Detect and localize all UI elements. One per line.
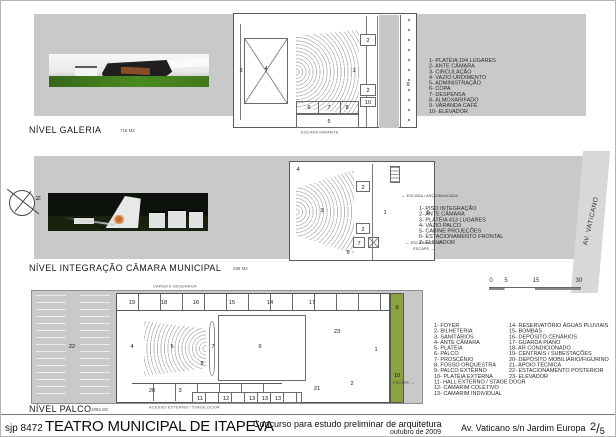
room-number: 13	[249, 395, 255, 401]
room-number: 13	[262, 395, 268, 401]
room-number: 1	[374, 346, 377, 352]
project-title: TEATRO MUNICIPAL DE ITAPEVA	[45, 418, 274, 435]
room-number: 12	[223, 395, 229, 401]
backstage-rooms-band	[117, 294, 389, 311]
north-compass: N	[5, 187, 41, 221]
room-number: 3	[178, 387, 181, 393]
scale-bar: 0 5 15 30	[489, 278, 581, 291]
integracao-area-label: 288 M2	[233, 266, 248, 271]
palco-escape-label: ESCAPE →	[393, 380, 415, 385]
room-number: 2	[361, 226, 364, 232]
room-number: 5	[346, 249, 349, 255]
room-number: 14	[267, 299, 273, 305]
room-number: 1	[352, 67, 355, 73]
room-number: 5	[327, 118, 330, 124]
palco-caption-top: CARGA E DESCARGA	[153, 284, 197, 289]
integracao-legend: 1- PISO INTEGRAÇÃO 2- ANTE CÂMARA 3- PLA…	[419, 206, 503, 246]
room-number: 9	[395, 304, 398, 310]
palco-caption-bottom: ACESSO EXTERNO / STAGE DOOR	[149, 405, 220, 410]
room-number: 15	[229, 299, 235, 305]
north-label: N	[34, 196, 40, 200]
stair-bleachers-text: ESCADA / ARQUIBANCADA	[407, 194, 458, 199]
room-number: 2	[366, 37, 369, 43]
scale-line	[489, 287, 581, 290]
legend-item: 7- ELEVADOR	[419, 240, 503, 246]
legend-item: 13- CAMARIM INDIVIDUAL	[434, 391, 526, 397]
room-number: 3	[239, 67, 242, 73]
project-code: sjp 8472	[5, 423, 43, 434]
shaft-room	[368, 237, 379, 248]
room-number: 7	[211, 343, 214, 349]
corridor-wall-2	[377, 16, 378, 127]
room-number: 11	[197, 395, 203, 401]
integracao-render-image	[48, 193, 208, 231]
galeria-plan-caption: ESCADA MIRANTE	[301, 130, 338, 135]
room-number: 2	[366, 87, 369, 93]
room-number: 19	[129, 299, 135, 305]
palco-floor-plan: 22 19 18 16 15 14 17 4 5 7 6 8 20 3 21 1…	[31, 290, 423, 404]
room-number: 4	[130, 343, 133, 349]
dressing-rooms-row	[192, 392, 302, 403]
room-number: 17	[309, 299, 315, 305]
room-number: 9	[406, 81, 409, 87]
date-label: outubro de 2009	[253, 429, 455, 436]
room-number: 7	[327, 104, 330, 110]
room-number: 6	[258, 343, 261, 349]
room-number: 7	[357, 240, 360, 246]
room-number: 4	[296, 166, 299, 172]
stair-run	[390, 166, 400, 183]
galeria-floor-plan: 3 4 1 2 2 10 6 7 8 5 9	[233, 13, 417, 128]
competition-subtitle-block: Concurso para estudo preliminar de arqui…	[253, 419, 455, 436]
palco-level-label: NÍVEL PALCO	[29, 404, 91, 414]
scale-tick-label: 0	[489, 278, 492, 284]
arrow-right-icon: →	[430, 246, 435, 251]
room-number: 18	[161, 299, 167, 305]
arrow-right-icon: →	[410, 380, 415, 385]
scale-tick-label: 15	[533, 278, 540, 284]
room-number: 21	[314, 385, 320, 391]
room-number: 2	[350, 380, 353, 386]
galeria-level-label: NÍVEL GALERIA	[29, 125, 101, 135]
sheet-total: 5	[600, 426, 605, 436]
integration-wall	[372, 164, 373, 260]
stair-bleachers-label: ← ESCADA / ARQUIBANCADA	[401, 193, 458, 198]
palco-area-label: 1855 M2	[91, 407, 108, 412]
render-lawn	[49, 76, 209, 87]
room-number: 2	[361, 184, 364, 190]
render-white-box	[189, 210, 203, 227]
competition-subtitle: Concurso para estudo preliminar de arqui…	[253, 419, 455, 429]
room-number: 5	[170, 343, 173, 349]
galeria-render-image	[49, 54, 209, 87]
arrow-left-icon: ←	[401, 193, 406, 198]
integracao-level-label: NÍVEL INTEGRAÇÃO CÂMARA MUNICIPAL	[29, 263, 221, 273]
legend-item: 10- ELEVADOR	[429, 109, 496, 115]
corridor-wall	[366, 16, 367, 127]
void-zone	[379, 15, 399, 128]
room-number: 20	[149, 387, 155, 393]
room-number: 3	[320, 207, 323, 213]
render-white-box	[149, 211, 165, 227]
parking-stripes-left	[36, 295, 66, 399]
stair-escape-label: ESCAPE →	[413, 246, 435, 251]
stair-escape-text: ESCAPE	[413, 247, 429, 252]
room-number: 16	[193, 299, 199, 305]
room-number: 8	[345, 104, 348, 110]
palco-legend-col2: 14- RESERVATÓRIO ÁGUAS PLUVIAIS 15- BOMB…	[509, 323, 609, 380]
cafe-balcony-strip	[400, 15, 417, 128]
sheet-number: 2/5	[590, 420, 605, 437]
room-number: 23	[334, 328, 340, 334]
address-label: Av. Vaticano s/n Jardim Europa	[461, 423, 586, 433]
room-number: 4	[264, 65, 267, 71]
palco-escape-text: ESCAPE	[393, 381, 409, 386]
galeria-area-label: 716 M2	[120, 128, 135, 133]
seating-rows	[296, 170, 354, 254]
room-number: 10	[365, 99, 371, 105]
room-number: 8	[200, 360, 203, 366]
room-number: 13	[275, 395, 281, 401]
parking-stripes-right	[80, 295, 110, 399]
room-number: 6	[307, 104, 310, 110]
seating-rows	[144, 321, 206, 376]
legend-item: 23- ELEVADOR	[509, 374, 609, 380]
arrow-left-icon: ←	[405, 240, 410, 245]
room-number: 22	[69, 343, 75, 349]
scale-tick-label: 5	[504, 278, 507, 284]
room-number: 10	[394, 372, 400, 378]
render-annex-building	[75, 66, 97, 76]
scale-tick-label: 30	[576, 278, 583, 284]
galeria-legend: 1- PLATÉIA 194 LUGARES 2- ANTE CÂMARA 3-…	[429, 58, 496, 115]
room-number: 1	[383, 209, 386, 215]
drawing-sheet: 3 4 1 2 2 10 6 7 8 5 9 1- PLATÉIA 194 LU…	[0, 0, 616, 437]
title-bar: sjp 8472 TEATRO MUNICIPAL DE ITAPEVA Con…	[1, 414, 615, 437]
render-white-box	[168, 209, 186, 228]
stage-room	[218, 315, 306, 381]
